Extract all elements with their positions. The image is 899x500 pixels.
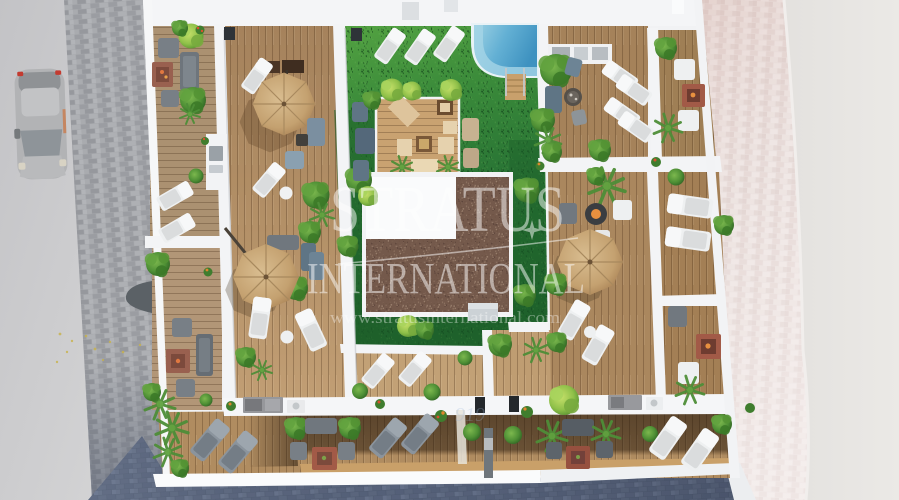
- svg-text:www.stratusinternational.com: www.stratusinternational.com: [330, 308, 560, 327]
- svg-text:STRATUS: STRATUS: [330, 173, 565, 246]
- svg-text:INTERNATIONAL: INTERNATIONAL: [307, 254, 585, 303]
- svg-text:919: 919: [455, 404, 485, 426]
